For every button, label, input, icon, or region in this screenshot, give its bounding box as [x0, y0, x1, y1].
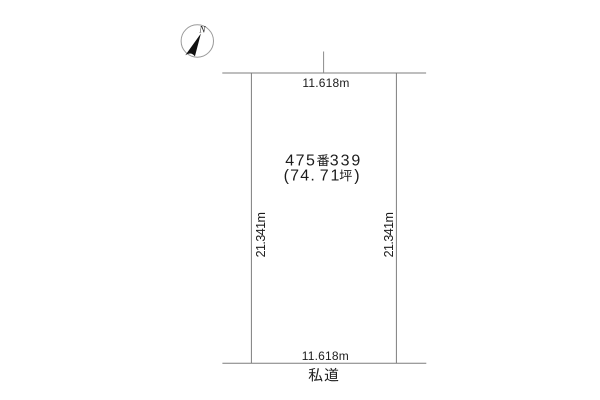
svg-text:71: 71 [320, 168, 341, 185]
svg-text:N: N [198, 26, 206, 36]
svg-text:11.618m: 11.618m [302, 76, 349, 90]
svg-text:21.341m: 21.341m [254, 212, 268, 257]
svg-text:21.341m: 21.341m [382, 212, 396, 257]
svg-text:): ) [354, 168, 359, 185]
svg-text:11.618m: 11.618m [302, 349, 349, 363]
svg-text:(74.: (74. [284, 168, 316, 185]
